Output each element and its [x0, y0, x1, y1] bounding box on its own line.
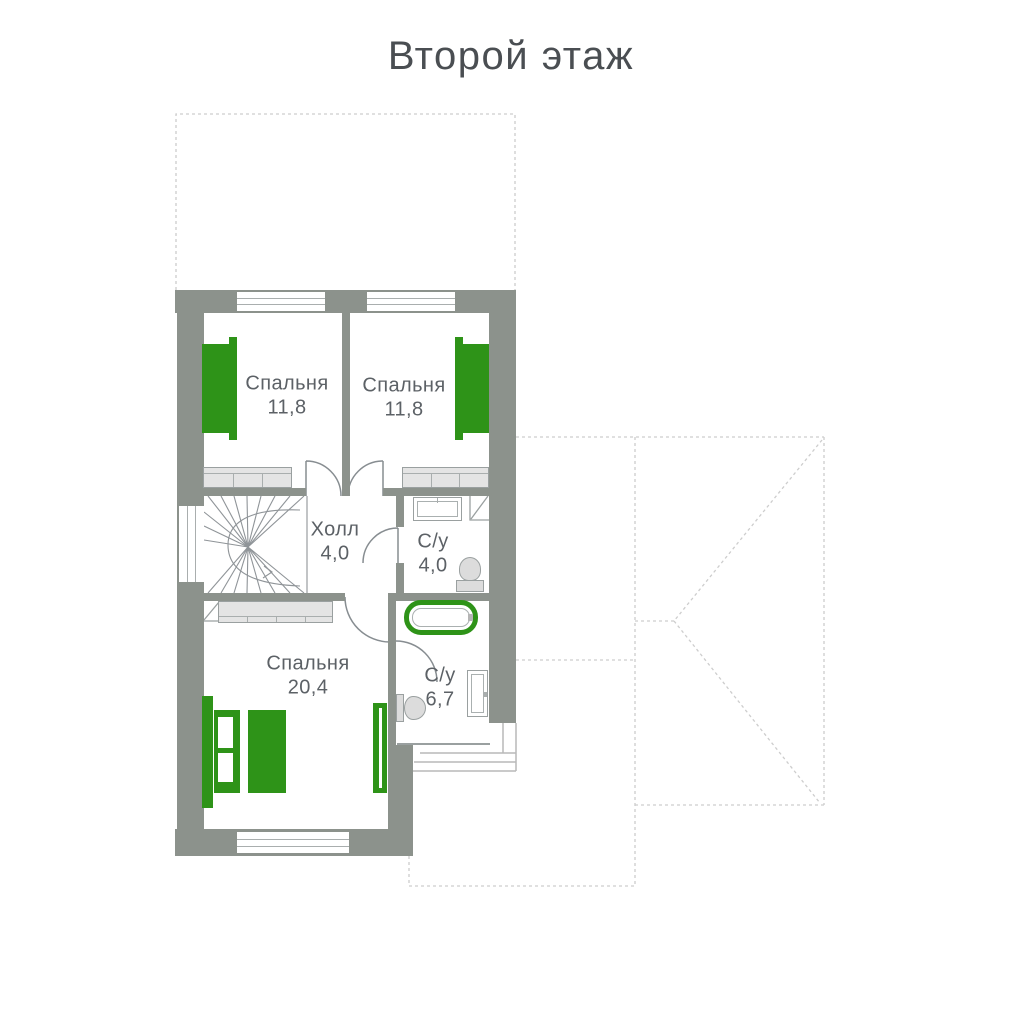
floor-plan-canvas: Второй этаж — [0, 0, 1022, 1024]
label-hall: Холл 4,0 — [311, 518, 360, 567]
wall-bedroom-divider — [342, 313, 350, 496]
door-bedroom-2 — [348, 461, 383, 496]
door-bedroom-1 — [306, 461, 341, 496]
door-bathroom-1 — [363, 528, 398, 563]
bed-3-headboard — [202, 696, 213, 808]
room-name: Спальня — [245, 372, 328, 396]
room-area: 4,0 — [417, 554, 448, 578]
staircase — [204, 496, 307, 593]
sink-bathroom-2 — [467, 670, 488, 717]
page-title: Второй этаж — [0, 34, 1022, 79]
bath-tap — [468, 614, 473, 621]
window-bottom — [237, 832, 349, 853]
label-bedroom-1: Спальня 11,8 — [245, 372, 328, 421]
dresser-panel — [373, 703, 387, 793]
wardrobe-bedroom-2 — [402, 467, 489, 488]
wall-bedroom3-right — [388, 601, 396, 745]
room-area: 4,0 — [311, 542, 360, 566]
wall-hall-top-right — [383, 488, 489, 496]
shower-corner — [470, 496, 489, 520]
room-name: Холл — [311, 518, 360, 542]
wall-hall-top-left — [204, 488, 306, 496]
bed-3-blanket — [248, 710, 286, 793]
window-top-2 — [367, 292, 455, 311]
bed-3-pillow-panel — [214, 710, 240, 793]
room-area: 11,8 — [245, 396, 328, 420]
wall-bath1-left-upper — [396, 496, 404, 527]
door-bedroom-3 — [345, 597, 390, 642]
bed-1-headboard — [229, 337, 237, 440]
room-name: С/у — [424, 664, 455, 688]
label-bedroom-2: Спальня 11,8 — [362, 374, 445, 423]
wardrobe-bedroom-3 — [218, 601, 333, 623]
room-area: 11,8 — [362, 398, 445, 422]
toilet-1-bowl — [459, 557, 481, 581]
room-name: Спальня — [362, 374, 445, 398]
toilet-2-bowl — [404, 696, 426, 720]
room-area: 20,4 — [266, 676, 349, 700]
label-bedroom-3: Спальня 20,4 — [266, 652, 349, 701]
stairs-direction-arrow — [263, 566, 272, 578]
toilet-2-tank — [396, 694, 404, 722]
bed-2-body — [462, 344, 489, 433]
bed-1-body — [202, 344, 230, 433]
wall-top — [175, 290, 516, 313]
terrace-steps — [397, 723, 516, 771]
wall-bedroom3-top — [204, 593, 345, 601]
wall-bottom-right-chunk — [388, 745, 413, 856]
label-bathroom-2: С/у 6,7 — [424, 664, 455, 713]
window-top-1 — [237, 292, 325, 311]
wardrobe-bedroom-1 — [203, 467, 292, 488]
room-name: Спальня — [266, 652, 349, 676]
pillow-2 — [218, 753, 233, 782]
pillow-1 — [218, 717, 233, 748]
bathtub — [404, 600, 478, 635]
window-left — [179, 506, 204, 582]
toilet-1-tank — [456, 580, 484, 592]
room-area: 6,7 — [424, 688, 455, 712]
wall-right — [489, 290, 516, 723]
label-bathroom-1: С/у 4,0 — [417, 530, 448, 579]
room-name: С/у — [417, 530, 448, 554]
sink-bathroom-1 — [413, 497, 462, 521]
